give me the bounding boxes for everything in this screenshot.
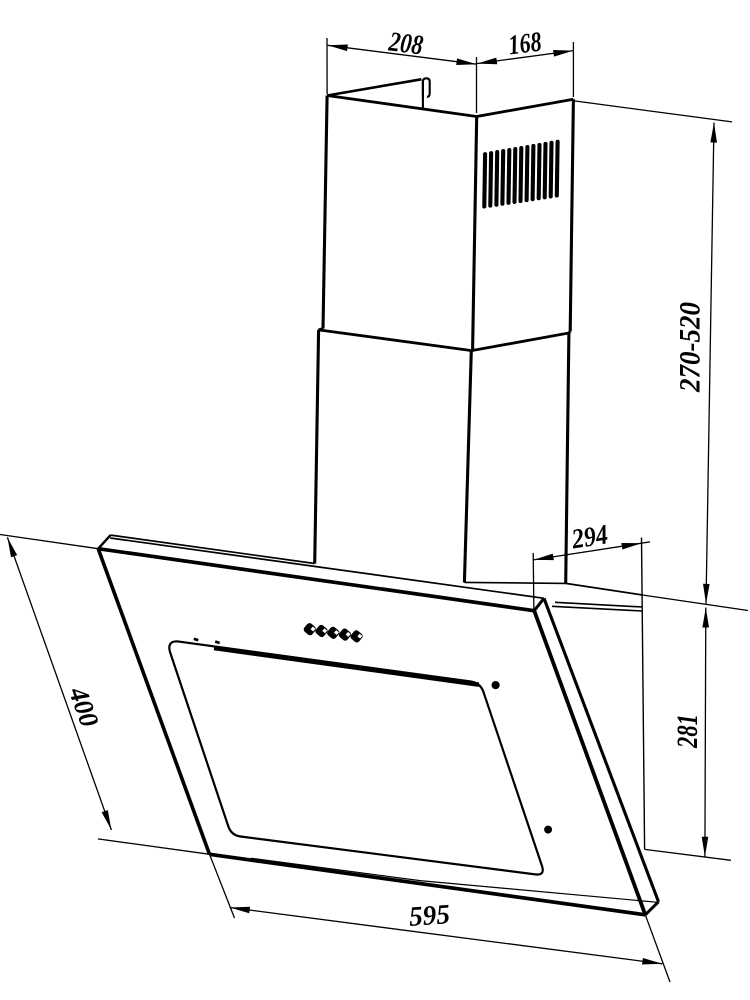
svg-text:400: 400: [63, 682, 105, 731]
svg-text:595: 595: [408, 899, 451, 933]
svg-text:281: 281: [671, 714, 704, 749]
svg-text:168: 168: [507, 27, 544, 62]
svg-text:270-520: 270-520: [674, 302, 707, 393]
svg-text:294: 294: [569, 519, 610, 555]
svg-text:208: 208: [386, 26, 424, 61]
